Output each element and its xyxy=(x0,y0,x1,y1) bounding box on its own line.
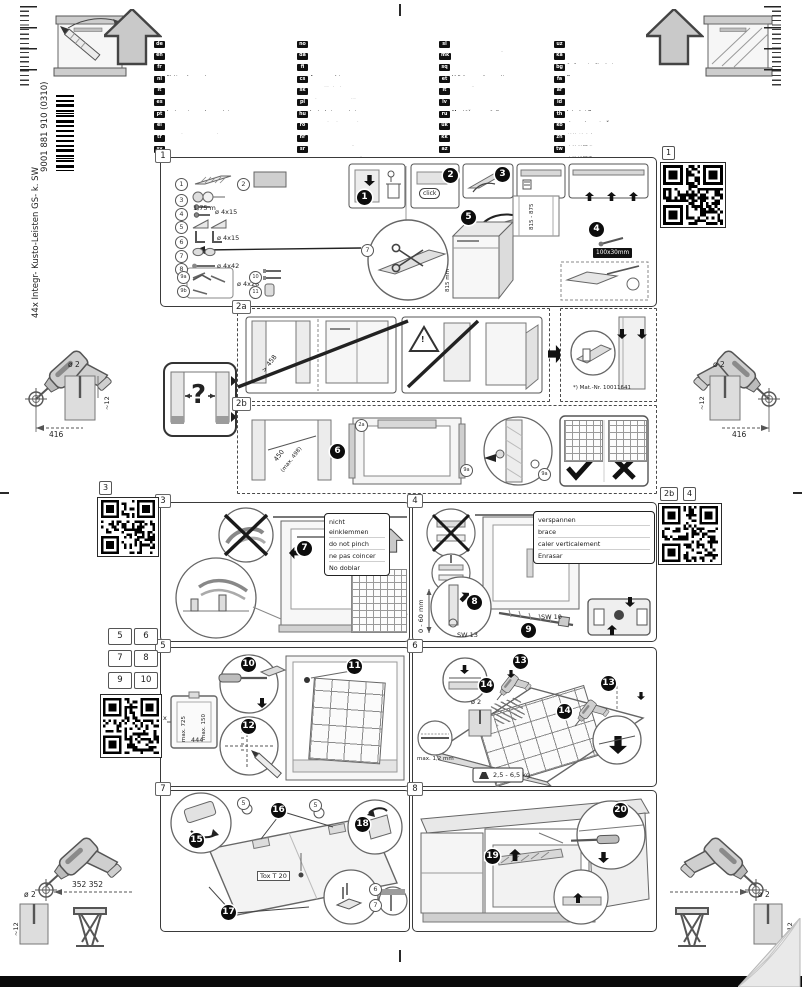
qr-modules xyxy=(663,165,723,225)
language-entry: ptInstruções de montagem*Podem ser adqui… xyxy=(154,111,294,122)
torx-size-label: Tox T 20 xyxy=(257,871,290,881)
drill-dia-label: ø 2 xyxy=(713,360,725,369)
language-entry: huSzerelési útmutató*A vevőszolgálaton k… xyxy=(297,111,435,122)
person-disposal-icon xyxy=(388,171,394,177)
panel-part-icon xyxy=(253,171,293,189)
note-es: Enrasar xyxy=(538,550,650,561)
panel-2b-label: 2b xyxy=(232,397,251,411)
language-entry: faدستورالعمل نصب*از خدمات پس از فروش قاب… xyxy=(554,76,656,87)
qr-label-3: 3 xyxy=(99,481,112,495)
language-entry: roInstrucţiune de montaj*obtenabilă la s… xyxy=(297,123,435,134)
language-code-badge: sl xyxy=(439,41,450,48)
drill-illustration xyxy=(15,298,165,446)
panel-2b-furniture-front: 2b xyxy=(237,405,657,494)
panel-7-label: 7 xyxy=(155,782,171,796)
distance-352-label: 352 352 xyxy=(72,880,103,889)
language-entry: lvMontāžas pamācība*var saņemt servisa d… xyxy=(439,99,551,110)
page-curl xyxy=(738,918,802,987)
drill-depth-label: ~12 xyxy=(698,396,706,410)
language-entry: idIntruksi Pemasangan*bisa didapatkan me… xyxy=(554,99,656,110)
part-callout-5: 5 xyxy=(175,221,188,234)
panel-4-label: 4 xyxy=(407,494,423,508)
page-ref-8: 8 xyxy=(134,650,158,667)
drilling-template xyxy=(308,678,386,765)
page-ref-5: 5 xyxy=(108,628,132,645)
panel-3-push-in: 3 xyxy=(160,502,410,642)
part-callout-7: 7 xyxy=(175,250,188,263)
language-code-badge: tr xyxy=(154,135,165,142)
language-entry: ltMontavimo instrukcija*galima gauti kli… xyxy=(439,88,551,99)
distance-416-label: 416 xyxy=(49,430,63,439)
part-callout-4: 4 xyxy=(175,208,188,221)
barcode xyxy=(56,95,74,171)
language-code-badge: fi xyxy=(297,64,308,71)
panel-6-drill-door: 6 xyxy=(412,647,657,787)
chipboard-texture xyxy=(564,420,603,462)
trestle-stand-icon xyxy=(676,908,708,946)
x-dim: x xyxy=(163,714,167,722)
part-callout-1: 1 xyxy=(175,178,188,191)
step-16-badge: 16 xyxy=(271,803,286,818)
language-code-badge: ro xyxy=(297,123,308,130)
warning-exclamation: ! xyxy=(421,335,424,344)
panel-8-mount-door: 8 19 xyxy=(412,790,657,932)
language-code-badge: hu xyxy=(297,111,308,118)
qr-modules xyxy=(661,506,719,562)
drill-detail-bottom-left: ø 2 ~12 352 352 xyxy=(12,826,172,961)
drill-illustration xyxy=(640,298,790,446)
door-weight-label: 2,5 - 6,5 kg xyxy=(493,771,530,779)
language-code-badge: lt xyxy=(439,88,450,95)
product-code-vertical: 44x Integr- Kusto-Leisten GS- k. SW xyxy=(31,167,41,318)
part-note: ø 4x15 xyxy=(217,234,239,242)
panel-8-label: 8 xyxy=(407,782,423,796)
step-14-badge: 14 xyxy=(557,704,572,719)
language-code-badge: ar xyxy=(554,88,565,95)
language-column: deMontageanleitung*über Kundendienst erh… xyxy=(154,41,294,158)
qr-code xyxy=(658,503,722,565)
bottom-print-bar xyxy=(0,976,802,987)
language-entry: nlMontagevoorschrift*Tegen meerprijs bij… xyxy=(154,76,294,87)
language-code-badge: tw xyxy=(554,146,565,153)
callout-7: 7 xyxy=(369,899,382,912)
drill-icon xyxy=(692,345,775,427)
language-entry: arتعليمات التركيب*متوفرة لدى مركز خدمة ا… xyxy=(554,88,656,99)
language-entry: ukІнструкція з монтажу*можна отримати че… xyxy=(439,123,551,134)
part-callout-6: 6 xyxy=(175,236,188,249)
language-entry: daMonteringsvejledning*Kan købes hos ser… xyxy=(297,53,435,64)
note-en: do not pinch xyxy=(329,538,385,550)
trestle-stand-icon xyxy=(74,908,106,946)
drill-icon xyxy=(679,832,762,914)
step-13-badge: 13 xyxy=(513,654,528,669)
niche-question-box: ? xyxy=(163,362,237,437)
part-callout-3: 3 xyxy=(175,194,188,207)
width-444-dim: 444 xyxy=(191,736,203,744)
language-code-badge: es xyxy=(154,99,165,106)
language-entry: ko설치 설명서*고객서비스 센터에서 구입 가능 xyxy=(554,123,656,134)
language-code-badge: de xyxy=(154,41,165,48)
language-code-badge: da xyxy=(297,53,308,60)
language-code-badge: it xyxy=(154,88,165,95)
screwdriver-icon xyxy=(571,835,619,845)
step-4-badge: 4 xyxy=(589,222,604,237)
front-width-dim: 450 xyxy=(272,448,286,463)
scissors-icon xyxy=(392,244,423,271)
language-code-badge: zh xyxy=(554,135,565,142)
panel-4-level-brace: 4 xyxy=(412,502,657,642)
part-callout-2: 2 xyxy=(237,178,250,191)
ruler-long-ticks xyxy=(20,6,37,88)
step-20-badge: 20 xyxy=(613,803,628,818)
part-note: ø 4x15 xyxy=(215,208,237,216)
step-18-badge: 18 xyxy=(355,817,370,832)
crop-mark xyxy=(0,492,9,494)
language-entry: itIstruzioni per il montaggio*Disponibil… xyxy=(154,88,294,99)
language-code-badge: hr xyxy=(297,135,308,142)
step-9-badge: 9 xyxy=(521,623,536,638)
drill-depth-label: ~12 xyxy=(103,396,111,410)
language-entry: thคำแนะนำการติดตั้ง*ขอรับได้จากฝ่ายบริกา… xyxy=(554,111,656,122)
language-code-badge: uz xyxy=(554,41,565,48)
weight-icon xyxy=(479,772,489,779)
language-code-badge: az xyxy=(439,146,450,153)
language-code-badge: id xyxy=(554,99,565,106)
step-6-badge: 6 xyxy=(330,444,345,459)
language-entry: uzO'rnatish yo'riqnomasi*mijozlarga xizm… xyxy=(554,41,656,52)
language-code-badge: ru xyxy=(439,111,450,118)
panel-1-label: 1 xyxy=(155,149,171,163)
step-14-badge: 14 xyxy=(479,678,494,693)
language-entry: azQuraşdırma təlimatları*müştəri xidmətl… xyxy=(439,146,551,157)
kit-part-icon xyxy=(191,270,231,288)
crop-mark xyxy=(793,492,802,494)
distance-416-label: 416 xyxy=(732,430,746,439)
panel-2a-illustration xyxy=(238,309,549,401)
language-code-badge: et xyxy=(439,76,450,83)
qr-code xyxy=(97,497,159,557)
qr-label-1: 1 xyxy=(662,146,675,160)
language-code-badge: ko xyxy=(554,123,565,130)
part-callout-10: 10 xyxy=(249,271,262,284)
step-8-badge: 8 xyxy=(467,595,482,610)
drill-icon xyxy=(39,832,122,914)
language-code-badge: sk xyxy=(297,88,308,95)
qr-label-2b: 2b xyxy=(660,487,678,501)
language-entry: slNavodilo za montažo*Lahko dobite v ser… xyxy=(439,41,551,52)
max-gap-label: max. 1,2 mm xyxy=(417,756,454,762)
language-entry: enInstallation instructions*Available fr… xyxy=(154,53,294,64)
strip-size-label: 100x30mm xyxy=(593,248,632,258)
part-note: 1,75 m xyxy=(193,204,216,212)
language-entry: plInstrukcja montażu*Do uzyskania w punk… xyxy=(297,99,435,110)
language-entry: frNotice de montage*Disponible par le bi… xyxy=(154,64,294,75)
drill-point-crosshair-icon xyxy=(758,388,780,410)
step-13-badge: 13 xyxy=(601,676,616,691)
language-code-badge: lv xyxy=(439,99,450,106)
drill-dia-label: ø 2 xyxy=(24,890,36,899)
language-list: deMontageanleitung*über Kundendienst erh… xyxy=(152,41,658,159)
qr-code xyxy=(100,694,162,758)
qr-label-4: 4 xyxy=(683,487,696,501)
language-entry: fiAsennusohje*Saatavissa huoltopalvelust… xyxy=(297,64,435,75)
wire-basket-texture xyxy=(351,569,407,633)
drill-point-crosshair-icon xyxy=(35,879,57,901)
note-de: verspannen xyxy=(538,514,650,526)
language-entry: svMonteringsanvisning*Kan fås via Servic… xyxy=(154,146,294,157)
language-entry: bgРъководство за монтаж*предоставя се от… xyxy=(554,64,656,75)
material-number-label: *) Mat.-Nr. 10011641 xyxy=(573,385,631,391)
language-entry: tw安裝說明書*可經由客戶服務單位索取 xyxy=(554,146,656,157)
language-column: uzO'rnatish yo'riqnomasi*mijozlarga xizm… xyxy=(554,41,656,158)
niche-height-dim: 815 - 875 xyxy=(529,204,535,230)
click-label: click xyxy=(419,188,440,199)
callout-5: 5 xyxy=(309,799,322,812)
callout-2a: 2a xyxy=(355,419,368,432)
step-3-badge: 3 xyxy=(495,167,510,182)
language-code-badge: bg xyxy=(554,64,565,71)
note-en: brace xyxy=(538,526,650,538)
drill-depth-label: ~12 xyxy=(12,922,20,936)
drill-point-crosshair-icon xyxy=(25,388,47,410)
language-code-badge: en xyxy=(154,53,165,60)
step-1-badge: 1 xyxy=(357,190,372,205)
panel-7-door-hardware: 7 xyxy=(160,790,410,932)
wrench-size-13: SW 13 xyxy=(457,631,478,639)
language-entry: esInstrucciones de montaje*(Se puede adq… xyxy=(154,99,294,110)
qr-modules xyxy=(100,500,156,554)
language-code-badge: no xyxy=(297,41,308,48)
page-ref-6: 6 xyxy=(134,628,158,645)
panel-2a-niche-check: 2a > 458 ! xyxy=(237,308,550,402)
language-code-badge: ka xyxy=(554,53,565,60)
part-callout-9a: 9a xyxy=(177,271,190,284)
language-code-badge: sq xyxy=(439,64,450,71)
step-5-badge: 5 xyxy=(461,210,476,225)
part-7-callout: 7 xyxy=(361,244,374,257)
language-code-badge: uk xyxy=(439,123,450,130)
crop-mark xyxy=(399,4,401,16)
instruction-sheet: deMontageanleitung*über Kundendienst erh… xyxy=(0,0,802,987)
language-code-badge: sr xyxy=(297,146,308,153)
callout-5: 5 xyxy=(237,797,250,810)
language-code-badge: el xyxy=(154,123,165,130)
niche-min-width-dim: > 458 xyxy=(260,353,279,374)
language-entry: ruИнструкция по монтажу*можно получить в… xyxy=(439,111,551,122)
drill-diameter-label: ø 2 xyxy=(471,698,481,706)
step-15-badge: 15 xyxy=(189,833,204,848)
page-ref-10: 10 xyxy=(134,672,158,689)
language-entry: kaმონტაჟის ინსტრუქცია*შეგიძლიათ მიიღოთ ს… xyxy=(554,53,656,64)
note-fr: caler verticalement xyxy=(538,538,650,550)
language-entry: noMonteringsanvisning*fåes hos kundeserv… xyxy=(297,41,435,52)
note-es: No doblar xyxy=(329,562,385,573)
language-code-badge: fr xyxy=(154,64,165,71)
callout-6: 6 xyxy=(369,883,382,896)
part-note: ø 4x42 xyxy=(217,262,239,270)
language-code-badge: nl xyxy=(154,76,165,83)
drill-illustration xyxy=(12,826,172,961)
language-code-badge: pt xyxy=(154,111,165,118)
language-entry: elΟδηγίες συναρμολόγησης*Διατίθενται από… xyxy=(154,123,294,134)
language-entry: hrUpute za montažu*može dobiti kod služb… xyxy=(297,135,435,146)
language-entry: skNávod na montáž*Dostanete v službe zák… xyxy=(297,88,435,99)
callout-9a: 9a xyxy=(460,464,473,477)
panel-6-label: 6 xyxy=(407,639,423,653)
note-de: nicht einklemmen xyxy=(329,516,385,538)
page-ref-9: 9 xyxy=(108,672,132,689)
document-number-vertical: 9001 881 910 (0310) xyxy=(40,82,50,172)
language-code-badge: th xyxy=(554,111,565,118)
brace-note: verspannen brace caler verticalement Enr… xyxy=(533,511,655,564)
part-callout-9b: 9b xyxy=(177,285,190,298)
note-fr: ne pas coincer xyxy=(329,550,385,562)
language-column: slNavodilo za montažo*Lahko dobite v ser… xyxy=(439,41,551,158)
arrow-down-icon xyxy=(364,175,375,186)
language-column: noMonteringsanvisning*fåes hos kundeserv… xyxy=(297,41,435,158)
drill-detail-right: ø 2 ~12 416 xyxy=(640,298,790,446)
language-entry: etMontaažijuhend*saab klienditeeninduses… xyxy=(439,76,551,87)
pinch-warning-note: nicht einklemmen do not pinch ne pas coi… xyxy=(324,513,390,576)
drill-dia-label: ø 2 xyxy=(758,890,770,899)
language-entry: kkМонтаждау нұсқаулығы*сервис қызметі ар… xyxy=(439,135,551,146)
language-entry: deMontageanleitung*über Kundendienst erh… xyxy=(154,41,294,52)
language-entry: csMontážní návod*K dispozici přes servis… xyxy=(297,76,435,87)
language-entry: zh安装说明书*可向售后服务部门索取 xyxy=(554,135,656,146)
panel-1-illustration xyxy=(161,158,656,306)
step-10-badge: 10 xyxy=(241,657,256,672)
panel-1-parts-overview: 1 xyxy=(160,157,657,307)
page-ref-7: 7 xyxy=(108,650,132,667)
step-19-badge: 19 xyxy=(485,849,500,864)
drill-icon xyxy=(29,345,112,427)
language-code-badge: pl xyxy=(297,99,308,106)
step-11-badge: 11 xyxy=(347,659,362,674)
step-17-badge: 17 xyxy=(221,905,236,920)
crop-mark xyxy=(399,950,401,962)
panel-5-template-marking: 5 10 11 12 max. xyxy=(160,647,410,787)
step-2-badge: 2 xyxy=(443,168,458,183)
drill-detail-left: ø 2 ~12 416 xyxy=(15,298,165,446)
callout-9a: 9a xyxy=(538,468,551,481)
language-entry: sqUdhëzues për montim*gjendet nëpërmjet … xyxy=(439,64,551,75)
qr-modules xyxy=(103,697,159,755)
step-12-badge: 12 xyxy=(241,719,256,734)
appliance-height-dim: 815 mm xyxy=(445,269,451,292)
language-entry: srUputstvo za montažu*Može se nabaviti p… xyxy=(297,146,435,157)
screwdriver-icon xyxy=(219,674,267,682)
cap-part-icon xyxy=(261,282,301,300)
max-725-dim: max. 725 xyxy=(181,716,187,742)
language-code-badge: cs xyxy=(297,76,308,83)
language-entry: trMontaj kılavuzu*Yetkili servis üzerind… xyxy=(154,135,294,146)
wrench-size-10: SW 10 xyxy=(541,613,562,621)
language-code-badge: kk xyxy=(439,135,450,142)
language-code-badge: mk xyxy=(439,53,451,60)
step-7-badge: 7 xyxy=(297,541,312,556)
range-dim: 0 - 60 mm xyxy=(417,599,425,633)
ruler-long-ticks xyxy=(764,6,781,88)
language-entry: mkУпатства за монтажа*се добива преку сл… xyxy=(439,53,551,64)
qr-code xyxy=(660,162,726,228)
question-mark: ? xyxy=(191,380,206,410)
panel-2a-label: 2a xyxy=(232,300,251,314)
language-code-badge: fa xyxy=(554,76,565,83)
drill-dia-label: ø 2 xyxy=(68,360,80,369)
part-callout-11: 11 xyxy=(249,286,262,299)
